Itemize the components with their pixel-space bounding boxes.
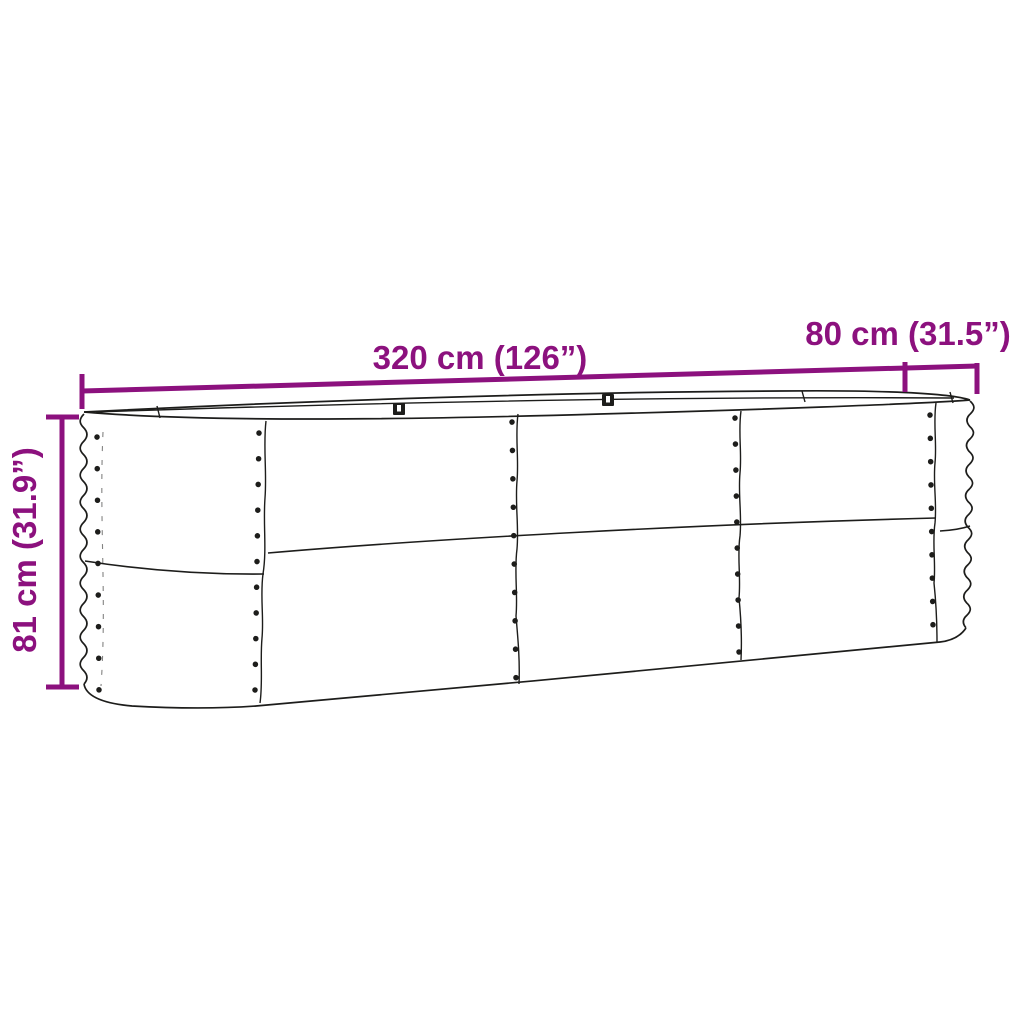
height-dimension-label: 81 cm (31.9”) [6, 447, 43, 652]
garden-bed-dimension-diagram: 320 cm (126”) 80 cm (31.5”) 81 cm (31.9”… [0, 0, 1024, 1024]
rivet-column-4 [735, 418, 739, 652]
panel-seam-vertical-1 [260, 421, 266, 703]
mounting-bracket-2 [602, 394, 614, 406]
rivet-column-2 [255, 433, 259, 690]
top-rim-front-edge [84, 400, 970, 419]
mounting-bracket-1 [393, 403, 405, 415]
rivet-column-1 [97, 437, 99, 690]
rivet-column-5 [930, 415, 933, 625]
rivet-column-3 [512, 422, 516, 678]
panel-seam-horizontal-right [940, 526, 970, 531]
rim-joint-tick-middle [802, 391, 805, 402]
rivets [97, 415, 933, 690]
top-rim-back-edge [84, 391, 970, 412]
panel-seam-vertical-2 [516, 414, 519, 684]
panel-seam-horizontal-left [85, 561, 264, 574]
dimension-diagram-page: 320 cm (126”) 80 cm (31.5”) 81 cm (31.9”… [0, 0, 1024, 1024]
panel-seam-vertical-4 [934, 403, 937, 642]
garden-bed-drawing [80, 391, 974, 708]
height-dimension: 81 cm (31.9”) [6, 417, 79, 687]
bottom-edge [84, 628, 966, 708]
left-corrugation-texture [101, 432, 103, 686]
width-dimension-label: 80 cm (31.5”) [805, 315, 1010, 352]
panel-seam-vertical-3 [739, 411, 742, 660]
left-corrugated-edge [80, 414, 87, 684]
length-dimension-label: 320 cm (126”) [373, 339, 588, 376]
panel-seam-horizontal-middle [268, 518, 936, 553]
right-corrugated-edge [963, 401, 974, 628]
